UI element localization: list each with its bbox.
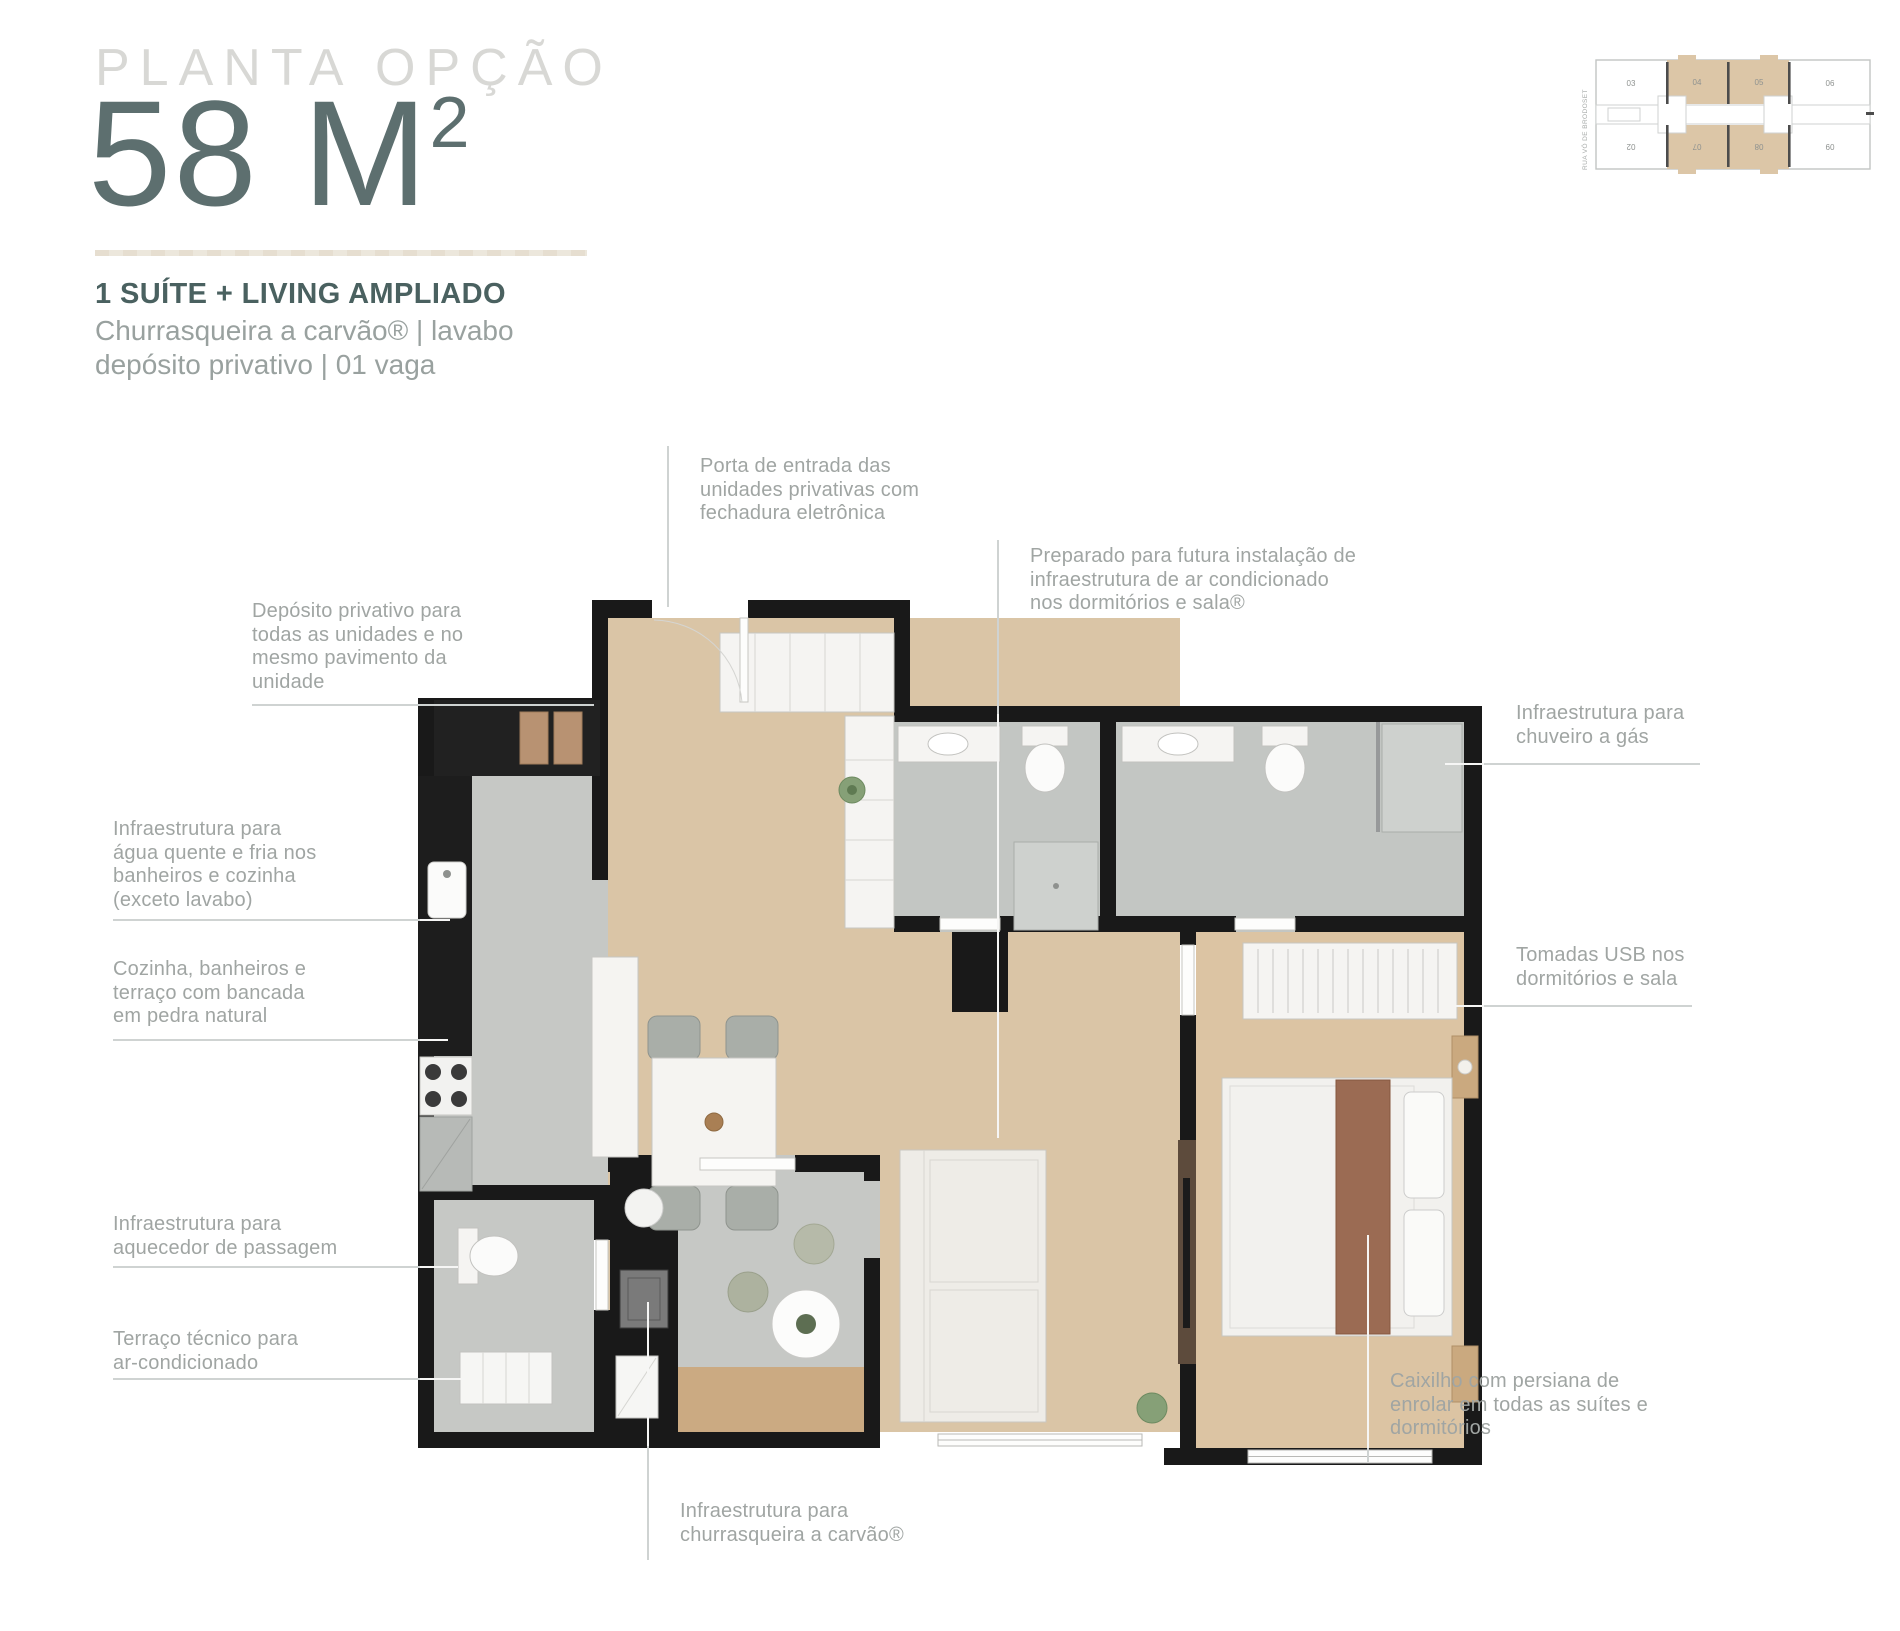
callout-bancada-pedra: Cozinha, banheiros e terraço com bancada…: [113, 958, 306, 1029]
svg-text:08: 08: [1754, 142, 1763, 151]
lavabo-door-leaf: [596, 1240, 608, 1310]
terrace-pouf-1: [728, 1272, 768, 1312]
svg-text:05: 05: [1755, 78, 1764, 87]
suite-wardrobe: [1243, 943, 1457, 1019]
bathroom-1-vanity: [898, 726, 1000, 762]
kitchen-stove: [420, 1057, 472, 1115]
kitchen-counter-gray: [420, 1117, 472, 1191]
plan-headline: 1 SUÍTE + LIVING AMPLIADO: [95, 278, 506, 311]
callout-churrasqueira: Infraestrutura para churrasqueira a carv…: [680, 1500, 904, 1547]
floor-plan-page: { "title": { "eyebrow": "PLANTA OPÇÃO", …: [0, 0, 1900, 1631]
callout-ar-condicionado: Preparado para futura instalação de infr…: [1030, 545, 1356, 616]
svg-text:02: 02: [1626, 142, 1635, 151]
callout-deposito: Depósito privativo para todas as unidade…: [252, 600, 463, 694]
living-sofa: [900, 1150, 1046, 1422]
bathroom-2-door-leaf: [1235, 918, 1295, 930]
area-exponent: 2: [429, 83, 469, 163]
building-keyplan: RUA VÓ DE BRODOSET 03 04 05 06 02 07 08 …: [1578, 52, 1878, 177]
bathroom-1-door-leaf: [940, 918, 1000, 930]
plan-features-line-2: depósito privativo | 01 vaga: [95, 348, 435, 382]
callout-agua-quente: Infraestrutura para água quente e fria n…: [113, 818, 316, 912]
living-window: [938, 1434, 1142, 1446]
callout-tomadas-usb: Tomadas USB nos dormitórios e sala: [1516, 944, 1685, 991]
terrace-table: [772, 1290, 840, 1358]
terrace-pouf-2: [794, 1224, 834, 1264]
plan-area-title: 58 M2: [88, 78, 470, 228]
svg-text:04: 04: [1693, 78, 1702, 87]
kitchen-sink: [428, 862, 466, 918]
bathroom-2-vanity: [1122, 726, 1234, 762]
keyplan-street-label: RUA VÓ DE BRODOSET: [1580, 89, 1589, 170]
header-divider: [95, 250, 587, 256]
suite-door-leaf: [1182, 945, 1194, 1015]
bathroom-2-toilet: [1262, 726, 1308, 792]
svg-text:03: 03: [1627, 79, 1636, 88]
callout-caixilho: Caixilho com persiana de enrolar em toda…: [1390, 1370, 1648, 1441]
callout-terraco-tecnico: Terraço técnico para ar-condicionado: [113, 1328, 298, 1375]
bathroom-2-shower: [1382, 724, 1462, 832]
kitchen-island: [592, 957, 638, 1157]
svg-text:06: 06: [1826, 79, 1835, 88]
ac-condenser-unit: [460, 1352, 552, 1404]
callout-aquecedor: Infraestrutura para aquecedor de passage…: [113, 1213, 337, 1260]
svg-text:07: 07: [1692, 142, 1701, 151]
callout-porta-entrada: Porta de entrada das unidades privativas…: [700, 455, 919, 526]
svg-text:09: 09: [1825, 142, 1834, 151]
tv-screen: [1183, 1178, 1190, 1328]
suite-window: [1248, 1450, 1432, 1463]
suite-bed: [1222, 1078, 1452, 1336]
area-value: 58 M: [88, 69, 429, 237]
deposito-cabinet: [434, 700, 600, 776]
bathroom-1-toilet: [1022, 726, 1068, 792]
plan-features-line-1: Churrasqueira a carvão® | lavabo: [95, 314, 514, 348]
terrace-door-leaf: [700, 1158, 795, 1170]
pantry-cabinet: [845, 716, 894, 928]
callout-chuveiro-gas: Infraestrutura para chuveiro a gás: [1516, 702, 1684, 749]
plant-living: [1137, 1393, 1167, 1423]
